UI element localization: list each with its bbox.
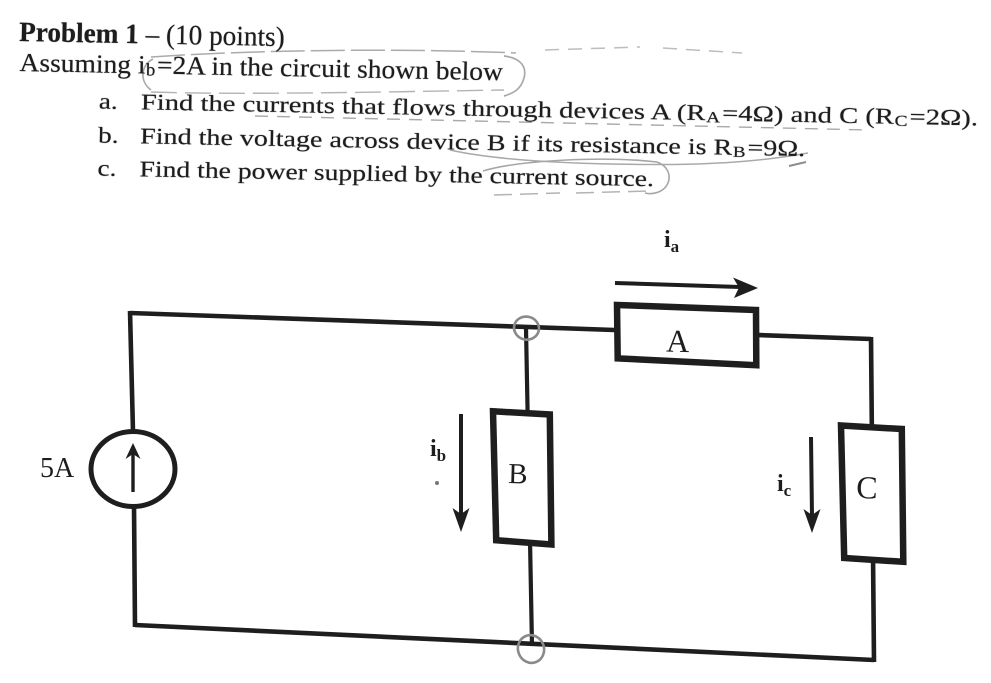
svg-text:B: B [508, 458, 528, 490]
svg-text:5A: 5A [40, 453, 75, 484]
svg-text:C: C [856, 469, 878, 506]
svg-text:ic: ic [777, 471, 792, 500]
svg-text:A: A [666, 323, 690, 360]
svg-text:ib: ib [430, 436, 446, 465]
